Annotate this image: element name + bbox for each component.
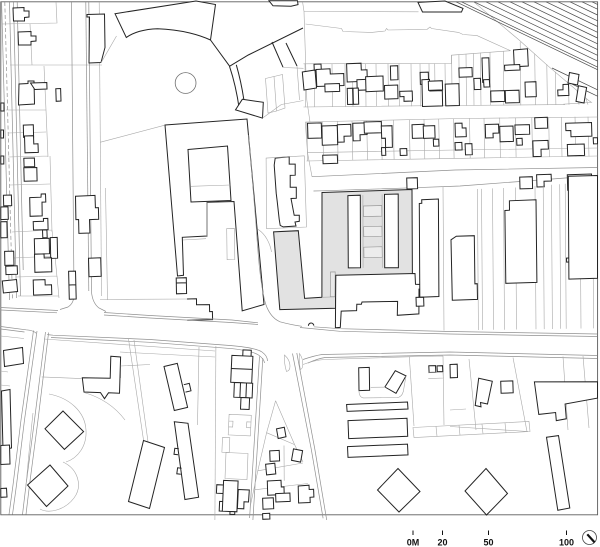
svg-text:20: 20 xyxy=(437,538,447,547)
svg-text:0M: 0M xyxy=(407,538,420,547)
svg-text:50: 50 xyxy=(483,538,493,547)
svg-text:100: 100 xyxy=(559,538,574,547)
